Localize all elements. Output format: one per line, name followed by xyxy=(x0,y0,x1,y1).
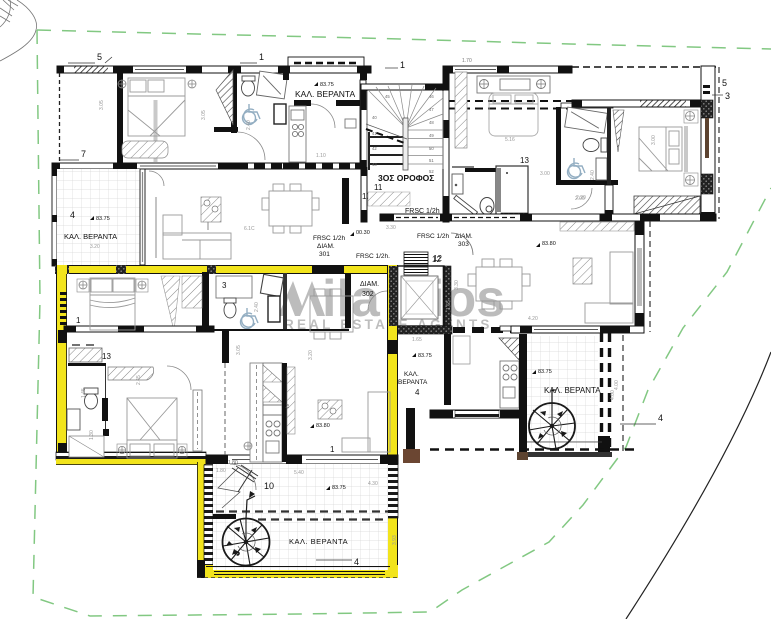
svg-text:3.05: 3.05 xyxy=(99,100,105,110)
svg-text:2.40: 2.40 xyxy=(254,302,260,312)
svg-text:10: 10 xyxy=(264,481,274,491)
svg-text:3.93: 3.93 xyxy=(392,535,398,545)
svg-text:1: 1 xyxy=(259,52,264,62)
svg-text:41: 41 xyxy=(372,131,377,136)
svg-text:4: 4 xyxy=(658,413,663,423)
svg-text:1.30: 1.30 xyxy=(89,430,95,440)
svg-text:3.30: 3.30 xyxy=(386,225,396,231)
svg-text:ΔΙΑΜ.: ΔΙΑΜ. xyxy=(317,243,335,250)
svg-text:83.80: 83.80 xyxy=(316,423,330,429)
svg-text:7: 7 xyxy=(81,149,86,159)
svg-text:tv: tv xyxy=(285,403,291,408)
svg-text:2.40: 2.40 xyxy=(246,120,252,130)
svg-text:49: 49 xyxy=(429,133,434,138)
svg-text:6.1C: 6.1C xyxy=(244,226,255,232)
svg-text:4.00: 4.00 xyxy=(614,380,620,390)
svg-text:ΔΙΑΜ.: ΔΙΑΜ. xyxy=(360,281,379,288)
svg-text:3.20: 3.20 xyxy=(308,350,314,360)
svg-text:50: 50 xyxy=(429,146,434,151)
svg-text:FRSC 1/2h: FRSC 1/2h xyxy=(417,233,450,240)
svg-text:1.45: 1.45 xyxy=(81,388,87,398)
svg-text:1.65: 1.65 xyxy=(412,337,422,343)
svg-text:ΚΑΛ. ΒΕΡΑΝΤΑ: ΚΑΛ. ΒΕΡΑΝΤΑ xyxy=(289,537,348,546)
svg-text:12: 12 xyxy=(433,254,442,263)
svg-text:40: 40 xyxy=(372,115,377,120)
svg-text:FRSC 1/2h: FRSC 1/2h xyxy=(313,235,346,242)
svg-text:83.75: 83.75 xyxy=(538,369,552,375)
svg-text:43: 43 xyxy=(372,162,377,167)
svg-text:3.30: 3.30 xyxy=(454,280,460,290)
svg-text:4: 4 xyxy=(354,557,359,567)
svg-text:3: 3 xyxy=(725,91,730,101)
svg-text:42: 42 xyxy=(372,146,377,151)
svg-text:FRSC 1/2h.: FRSC 1/2h. xyxy=(356,253,390,260)
svg-text:3.20: 3.20 xyxy=(90,244,100,250)
svg-text:FRSC 1/2h: FRSC 1/2h xyxy=(405,208,440,215)
svg-text:1: 1 xyxy=(330,445,335,454)
svg-text:3.05: 3.05 xyxy=(201,110,207,120)
svg-text:5.40: 5.40 xyxy=(294,470,304,476)
svg-text:301: 301 xyxy=(319,251,330,258)
svg-text:5: 5 xyxy=(722,78,727,88)
svg-text:83.80: 83.80 xyxy=(542,241,556,247)
svg-text:5: 5 xyxy=(97,52,102,62)
svg-text:46: 46 xyxy=(429,94,434,99)
svg-text:4: 4 xyxy=(70,210,75,220)
svg-text:2.40: 2.40 xyxy=(590,170,596,180)
svg-text:83.75: 83.75 xyxy=(332,485,346,491)
svg-text:13: 13 xyxy=(102,352,111,361)
svg-text:1.80: 1.80 xyxy=(216,468,226,474)
svg-text:1: 1 xyxy=(76,316,81,325)
svg-text:00.30: 00.30 xyxy=(356,230,370,236)
svg-text:47: 47 xyxy=(429,107,434,112)
svg-text:1.10: 1.10 xyxy=(316,153,326,159)
svg-text:83.75: 83.75 xyxy=(96,216,110,222)
svg-text:48: 48 xyxy=(429,120,434,125)
svg-text:83.75: 83.75 xyxy=(418,353,432,359)
svg-text:2.45: 2.45 xyxy=(136,375,142,385)
svg-text:3: 3 xyxy=(222,281,227,290)
svg-text:ΚΑΛ. ΒΕΡΑΝΤΑ: ΚΑΛ. ΒΕΡΑΝΤΑ xyxy=(64,232,117,241)
svg-text:1.70: 1.70 xyxy=(462,58,472,64)
svg-text:ΚΑΛ.: ΚΑΛ. xyxy=(404,371,419,378)
svg-text:2.00: 2.00 xyxy=(575,196,585,202)
svg-text:5.16: 5.16 xyxy=(505,137,515,143)
svg-text:3.00: 3.00 xyxy=(540,171,550,177)
svg-text:51: 51 xyxy=(429,158,434,163)
svg-text:83.75: 83.75 xyxy=(320,82,334,88)
svg-text:4.00: 4.00 xyxy=(610,390,616,400)
svg-text:303: 303 xyxy=(458,241,469,248)
svg-text:ΒΕΡΑΝΤΑ: ΒΕΡΑΝΤΑ xyxy=(398,379,428,386)
svg-text:11: 11 xyxy=(374,183,383,192)
svg-text:ΚΑΛ. ΒΕΡΑΝΤΑ: ΚΑΛ. ΒΕΡΑΝΤΑ xyxy=(544,386,601,395)
svg-text:3.05: 3.05 xyxy=(236,345,242,355)
svg-text:1.65: 1.65 xyxy=(446,300,452,310)
svg-text:1: 1 xyxy=(400,60,405,70)
svg-text:4.30: 4.30 xyxy=(368,481,378,487)
svg-text:1.80: 1.80 xyxy=(228,460,238,466)
svg-text:3.00: 3.00 xyxy=(651,135,657,145)
svg-text:3ΟΣ ΟΡΟΦΟΣ: 3ΟΣ ΟΡΟΦΟΣ xyxy=(378,173,434,183)
svg-text:302: 302 xyxy=(362,291,374,298)
svg-text:4.20: 4.20 xyxy=(528,316,538,322)
svg-text:13: 13 xyxy=(520,156,529,165)
svg-text:4: 4 xyxy=(415,388,420,397)
svg-text:ΚΑΛ. ΒΕΡΑΝΤΑ: ΚΑΛ. ΒΕΡΑΝΤΑ xyxy=(295,89,355,99)
svg-text:45: 45 xyxy=(385,94,390,99)
